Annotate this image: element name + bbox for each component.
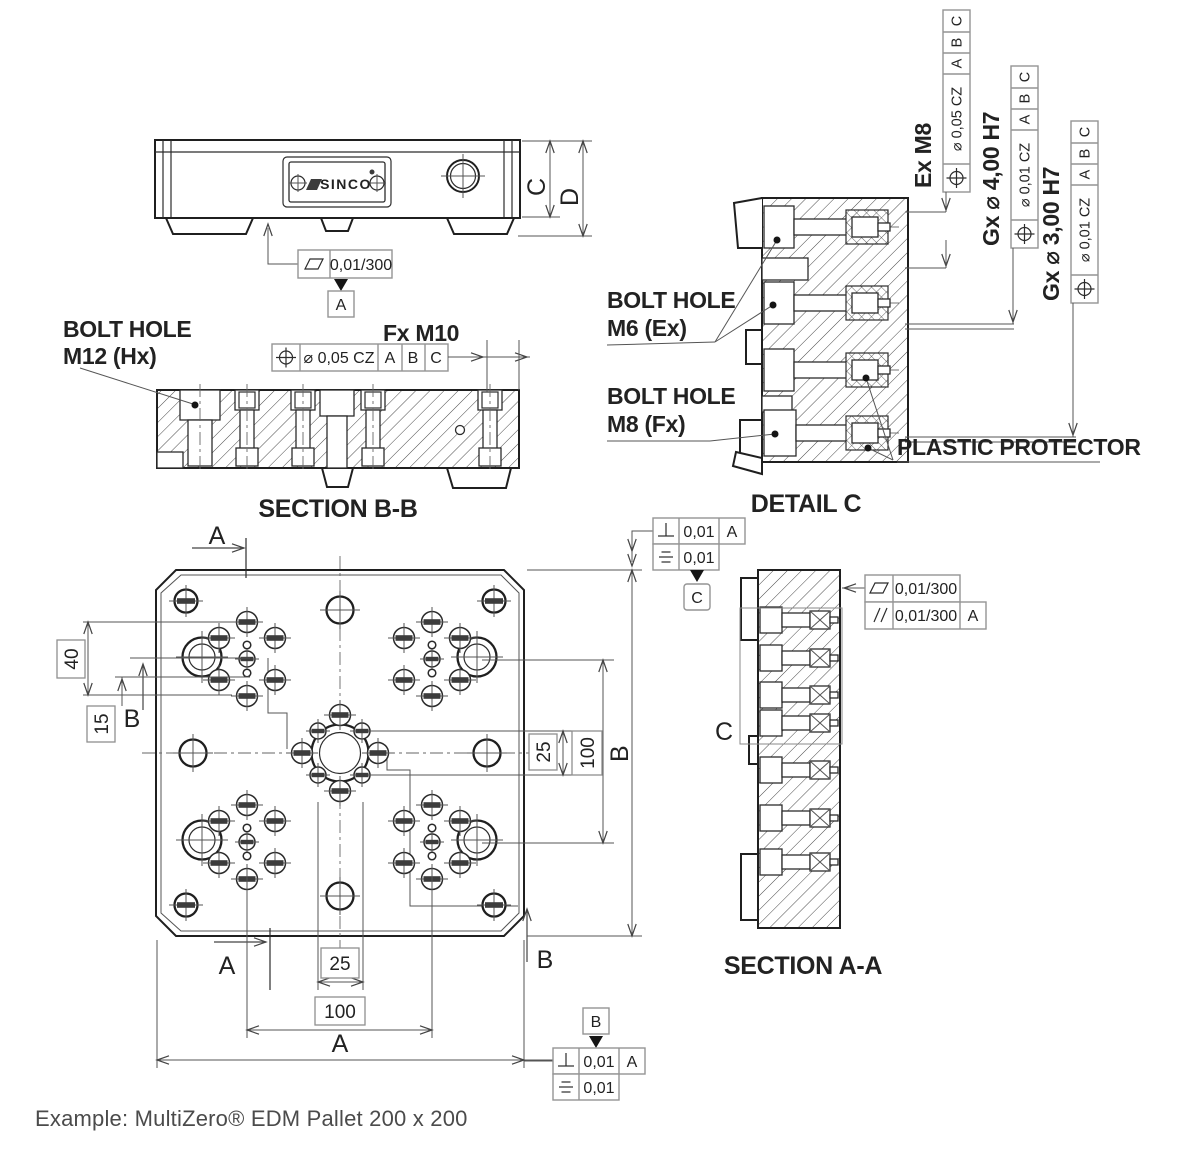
label-bolt-hole-m8-line1: BOLT HOLE: [607, 383, 735, 409]
fcf-flatness-datum-a: 0,01/300 A: [264, 224, 392, 317]
hole-cluster-se: [388, 790, 503, 894]
datum-ref: B: [1018, 94, 1034, 104]
section-bb-view: BOLT HOLE M12 (Hx) Fx M10 ⌀ 0,05 CZ A B …: [63, 316, 530, 523]
drawing-sheet: SINCO C D 0,01/300 A: [0, 0, 1181, 1149]
plan-view: A A B B 40 15: [57, 518, 745, 1100]
corner-screw-hole: [477, 585, 511, 617]
leader-dot: [770, 302, 777, 309]
label-fx-m10: Fx M10: [383, 320, 459, 346]
section-letter-a: A: [209, 522, 226, 550]
datum-ref: B: [950, 38, 966, 48]
section-mark-a-bottom: A: [214, 928, 270, 990]
label-gx-4: Gx ⌀ 4,00 H7: [978, 112, 1004, 246]
section-letter-b: B: [124, 705, 141, 733]
datum-ref: B: [408, 350, 419, 367]
label-bolt-hole-m6-line1: BOLT HOLE: [607, 287, 735, 313]
edge-hole: [320, 877, 360, 915]
datum-box-b: B: [591, 1014, 602, 1031]
label-gx-3: Gx ⌀ 3,00 H7: [1038, 167, 1064, 301]
dim-letter-a: A: [332, 1030, 349, 1058]
position-tolerance: ⌀ 0,01 CZ: [1018, 143, 1034, 207]
detail-c-view: BOLT HOLE M6 (Ex) BOLT HOLE M8 (Fx) PLAS…: [607, 10, 1141, 518]
edge-hole: [173, 734, 213, 772]
lifting-hole: [441, 154, 485, 198]
foot-left: [166, 218, 253, 234]
fcf-position-fx-m10: ⌀ 0,05 CZ A B C: [272, 340, 530, 392]
hole-cluster-ne: [388, 607, 503, 711]
dim-label-c: C: [523, 178, 551, 196]
symmetry-tolerance: 0,01: [683, 550, 714, 567]
datum-ref: C: [950, 16, 966, 26]
detail-zone-letter-c: C: [715, 718, 733, 746]
dim-value-40: 40: [62, 648, 83, 669]
label-bolt-hole-m12-line1: BOLT HOLE: [63, 316, 191, 342]
dim-15: 15: [87, 658, 250, 742]
datum-ref: A: [968, 608, 979, 625]
parallelism-tolerance: 0,01/300: [895, 608, 957, 625]
fcf-plan-top: 0,01 A 0,01 C: [628, 518, 745, 610]
datum-triangle-icon: [334, 279, 348, 291]
perp-tolerance: 0,01: [683, 524, 714, 541]
example-caption: Example: MultiZero® EDM Pallet 200 x 200: [35, 1106, 468, 1131]
flatness-tolerance: 0,01/300: [330, 257, 392, 274]
position-tolerance: ⌀ 0,05 CZ: [304, 350, 375, 367]
caption-section-bb: SECTION B-B: [258, 495, 417, 523]
corner-screw-hole: [169, 585, 203, 617]
dim-letter-b: B: [606, 745, 634, 762]
datum-box-c: C: [691, 590, 703, 607]
datum-ref: A: [950, 58, 966, 68]
section-aa-view: C 0,01/300 0,01/300 A SECTION A-A: [715, 570, 986, 980]
corner-screw-hole: [477, 889, 511, 921]
section-letter-b: B: [537, 946, 554, 974]
edge-hole: [320, 591, 360, 629]
dim-value-15: 15: [92, 713, 113, 734]
section-letter-a: A: [219, 952, 236, 980]
datum-ref: C: [430, 350, 442, 367]
slotted-hole: [324, 700, 356, 730]
dim-label-d: D: [556, 188, 584, 206]
fcf-position-gx-4: ⌀ 0,01 CZ A B C: [1011, 66, 1038, 248]
registered-dot-icon: [370, 170, 375, 175]
dim-value-25: 25: [329, 954, 350, 975]
datum-box-a: A: [336, 297, 347, 314]
dim-value-25: 25: [534, 741, 555, 762]
foot-right: [447, 218, 514, 234]
datum-ref: C: [1078, 127, 1094, 137]
symmetry-tolerance: 0,01: [583, 1080, 614, 1097]
datum-triangle-icon: [690, 570, 704, 582]
datum-ref: C: [1018, 72, 1034, 82]
datum-triangle-icon: [589, 1036, 603, 1048]
label-bolt-hole-m8-line2: M8 (Fx): [607, 411, 685, 437]
foot-center: [321, 218, 353, 231]
datum-ref: A: [385, 350, 396, 367]
corner-screw-hole: [169, 889, 203, 921]
leader-dot: [774, 237, 781, 244]
slotted-hole: [324, 776, 356, 806]
side-elevation-view: SINCO C D 0,01/300 A: [155, 140, 592, 317]
logo-text: SINCO: [320, 176, 372, 192]
perp-tolerance: 0,01: [583, 1054, 614, 1071]
small-hole: [456, 426, 465, 435]
label-ex-m8: Ex M8: [910, 123, 936, 188]
dim-value-100: 100: [324, 1002, 356, 1023]
fcf-position-ex-m8: ⌀ 0,05 CZ A B C: [943, 10, 970, 192]
fcf-plan-bottom: B 0,01 A 0,01: [524, 1008, 645, 1100]
position-tolerance: ⌀ 0,05 CZ: [950, 87, 966, 151]
datum-ref: A: [1078, 169, 1094, 179]
datum-ref: A: [727, 524, 738, 541]
datum-ref: B: [1078, 149, 1094, 159]
label-bolt-hole-m12-line2: M12 (Hx): [63, 343, 156, 369]
fcf-position-gx-3: ⌀ 0,01 CZ A B C: [1071, 121, 1098, 303]
hole-cluster-sw: [176, 790, 291, 894]
edge-hole: [467, 734, 507, 772]
datum-ref: A: [627, 1054, 638, 1071]
position-tolerance: ⌀ 0,01 CZ: [1078, 198, 1094, 262]
caption-section-aa: SECTION A-A: [724, 952, 883, 980]
caption-detail-c: DETAIL C: [751, 490, 862, 518]
leader-dot: [192, 402, 199, 409]
label-bolt-hole-m6-line2: M6 (Ex): [607, 315, 687, 341]
logo-plate: SINCO: [283, 157, 391, 207]
dim-value-100: 100: [578, 737, 599, 769]
section-mark-b-left: B: [124, 664, 148, 733]
label-plastic-protector: PLASTIC PROTECTOR: [897, 434, 1141, 460]
datum-ref: A: [1018, 114, 1034, 124]
leader-dot: [772, 431, 779, 438]
leader-dot: [865, 445, 872, 452]
fcf-section-aa: 0,01/300 0,01/300 A: [842, 575, 986, 629]
section-mark-b-right: B: [523, 909, 554, 974]
flatness-tolerance: 0,01/300: [895, 581, 957, 598]
leader-dot: [863, 375, 870, 382]
technical-drawing: SINCO C D 0,01/300 A: [0, 0, 1181, 1149]
